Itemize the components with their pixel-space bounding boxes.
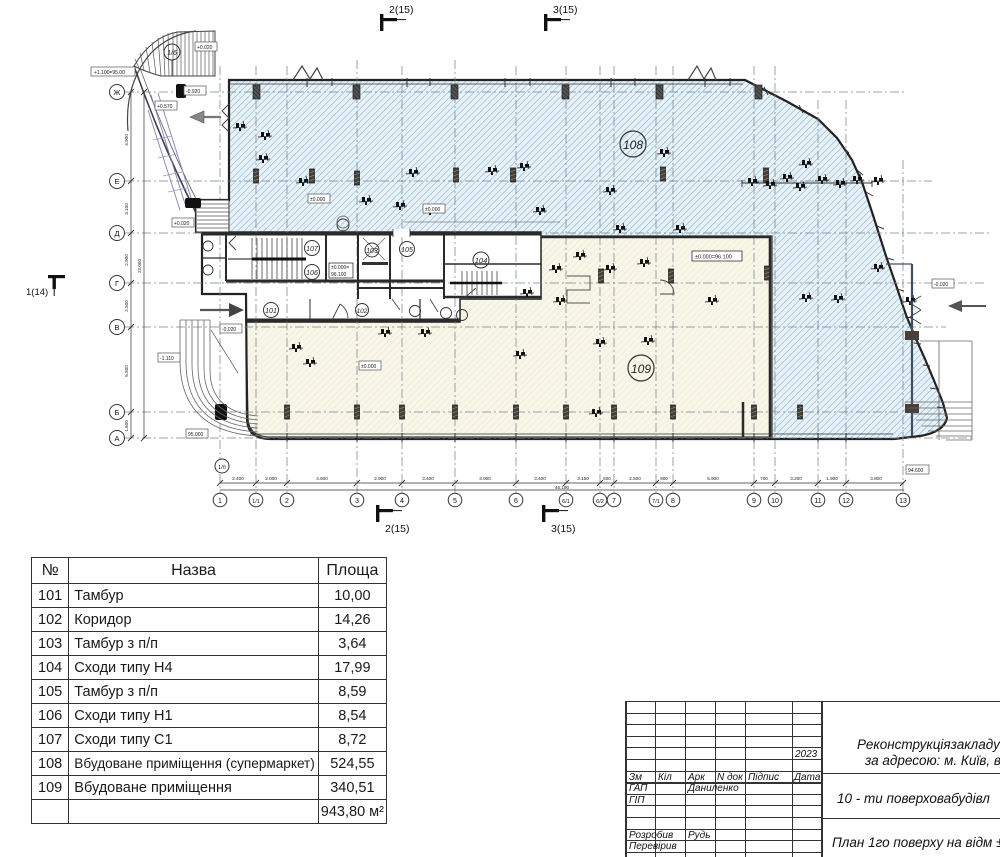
svg-text:5.500: 5.500	[124, 365, 129, 377]
svg-text:6/2: 6/2	[596, 499, 604, 505]
svg-text:4.900: 4.900	[124, 134, 129, 146]
svg-text:9: 9	[752, 498, 756, 505]
svg-text:Ж: Ж	[114, 88, 121, 97]
svg-text:3.200: 3.200	[790, 476, 802, 481]
svg-text:2.500: 2.500	[124, 300, 129, 312]
svg-text:108: 108	[623, 138, 643, 152]
svg-text:2: 2	[285, 498, 289, 505]
svg-text:1.600: 1.600	[124, 420, 129, 432]
svg-text:-0.920: -0.920	[186, 89, 200, 95]
svg-text:±0.000: ±0.000	[361, 364, 376, 370]
svg-text:103: 103	[366, 248, 378, 255]
svg-text:12: 12	[842, 498, 850, 505]
svg-text:1(14): 1(14)	[26, 287, 48, 298]
svg-text:105: 105	[401, 247, 413, 254]
svg-text:1.900: 1.900	[826, 476, 838, 481]
svg-text:3.400: 3.400	[422, 476, 434, 481]
svg-text:13: 13	[899, 498, 907, 505]
svg-text:2.900: 2.900	[374, 476, 386, 481]
svg-text:6: 6	[514, 498, 518, 505]
svg-text:3: 3	[355, 498, 359, 505]
svg-text:Б: Б	[115, 408, 120, 417]
svg-text:3(15): 3(15)	[551, 523, 576, 535]
svg-text:±0.000: ±0.000	[310, 197, 325, 203]
svg-text:2.500: 2.500	[629, 476, 641, 481]
svg-text:106: 106	[306, 270, 318, 277]
svg-text:2.400: 2.400	[232, 476, 244, 481]
svg-text:104: 104	[475, 256, 488, 265]
svg-text:3.800: 3.800	[870, 476, 882, 481]
svg-text:2(15): 2(15)	[385, 523, 410, 535]
svg-text:22.000: 22.000	[137, 259, 142, 273]
svg-text:±0.000=96.100: ±0.000=96.100	[695, 255, 732, 261]
svg-text:2(15): 2(15)	[389, 4, 414, 16]
svg-text:А: А	[114, 434, 119, 443]
svg-text:3.150: 3.150	[577, 476, 589, 481]
svg-text:2.000: 2.000	[265, 476, 277, 481]
svg-text:5: 5	[453, 498, 457, 505]
svg-text:96.100: 96.100	[331, 272, 347, 278]
svg-text:8: 8	[671, 498, 675, 505]
svg-text:1/1: 1/1	[252, 499, 260, 505]
svg-text:+0.570: +0.570	[157, 104, 173, 110]
svg-text:±0.000: ±0.000	[425, 207, 440, 213]
svg-text:2.900: 2.900	[124, 254, 129, 266]
svg-text:11: 11	[814, 498, 821, 505]
svg-text:5.900: 5.900	[707, 476, 719, 481]
svg-text:В: В	[114, 323, 119, 332]
svg-text:3.100: 3.100	[124, 203, 129, 215]
svg-text:107: 107	[306, 246, 319, 253]
svg-text:-0.020: -0.020	[222, 327, 236, 333]
svg-text:95.000: 95.000	[188, 432, 204, 438]
svg-text:109: 109	[631, 362, 651, 376]
svg-text:1: 1	[218, 498, 222, 505]
svg-text:+0.020: +0.020	[174, 221, 190, 227]
svg-text:6/1: 6/1	[562, 499, 570, 505]
svg-text:7/1: 7/1	[652, 499, 660, 505]
svg-text:10: 10	[771, 498, 779, 505]
svg-text:4: 4	[400, 498, 404, 505]
svg-text:4.600: 4.600	[316, 476, 328, 481]
svg-text:1/б: 1/б	[218, 465, 226, 471]
svg-text:Д: Д	[114, 229, 119, 238]
svg-text:94.600: 94.600	[908, 468, 924, 474]
svg-text:46.100: 46.100	[555, 485, 569, 490]
svg-text:500: 500	[603, 476, 611, 481]
svg-text:3.900: 3.900	[479, 476, 491, 481]
svg-text:3.400: 3.400	[534, 476, 546, 481]
svg-text:Г: Г	[115, 279, 119, 288]
svg-text:102: 102	[357, 308, 368, 315]
svg-text:±0.000=: ±0.000=	[331, 265, 349, 271]
svg-text:900: 900	[660, 476, 668, 481]
svg-text:1/6: 1/6	[167, 50, 177, 57]
svg-text:+0.020: +0.020	[197, 45, 213, 51]
svg-text:3(15): 3(15)	[553, 4, 578, 16]
svg-text:+1.100=95.00: +1.100=95.00	[94, 70, 125, 76]
svg-text:101: 101	[265, 308, 277, 315]
svg-text:7: 7	[612, 498, 616, 505]
svg-text:-0.020: -0.020	[934, 282, 948, 288]
svg-text:Е: Е	[114, 177, 119, 186]
svg-text:-1.110: -1.110	[160, 356, 174, 362]
svg-text:700: 700	[760, 476, 768, 481]
